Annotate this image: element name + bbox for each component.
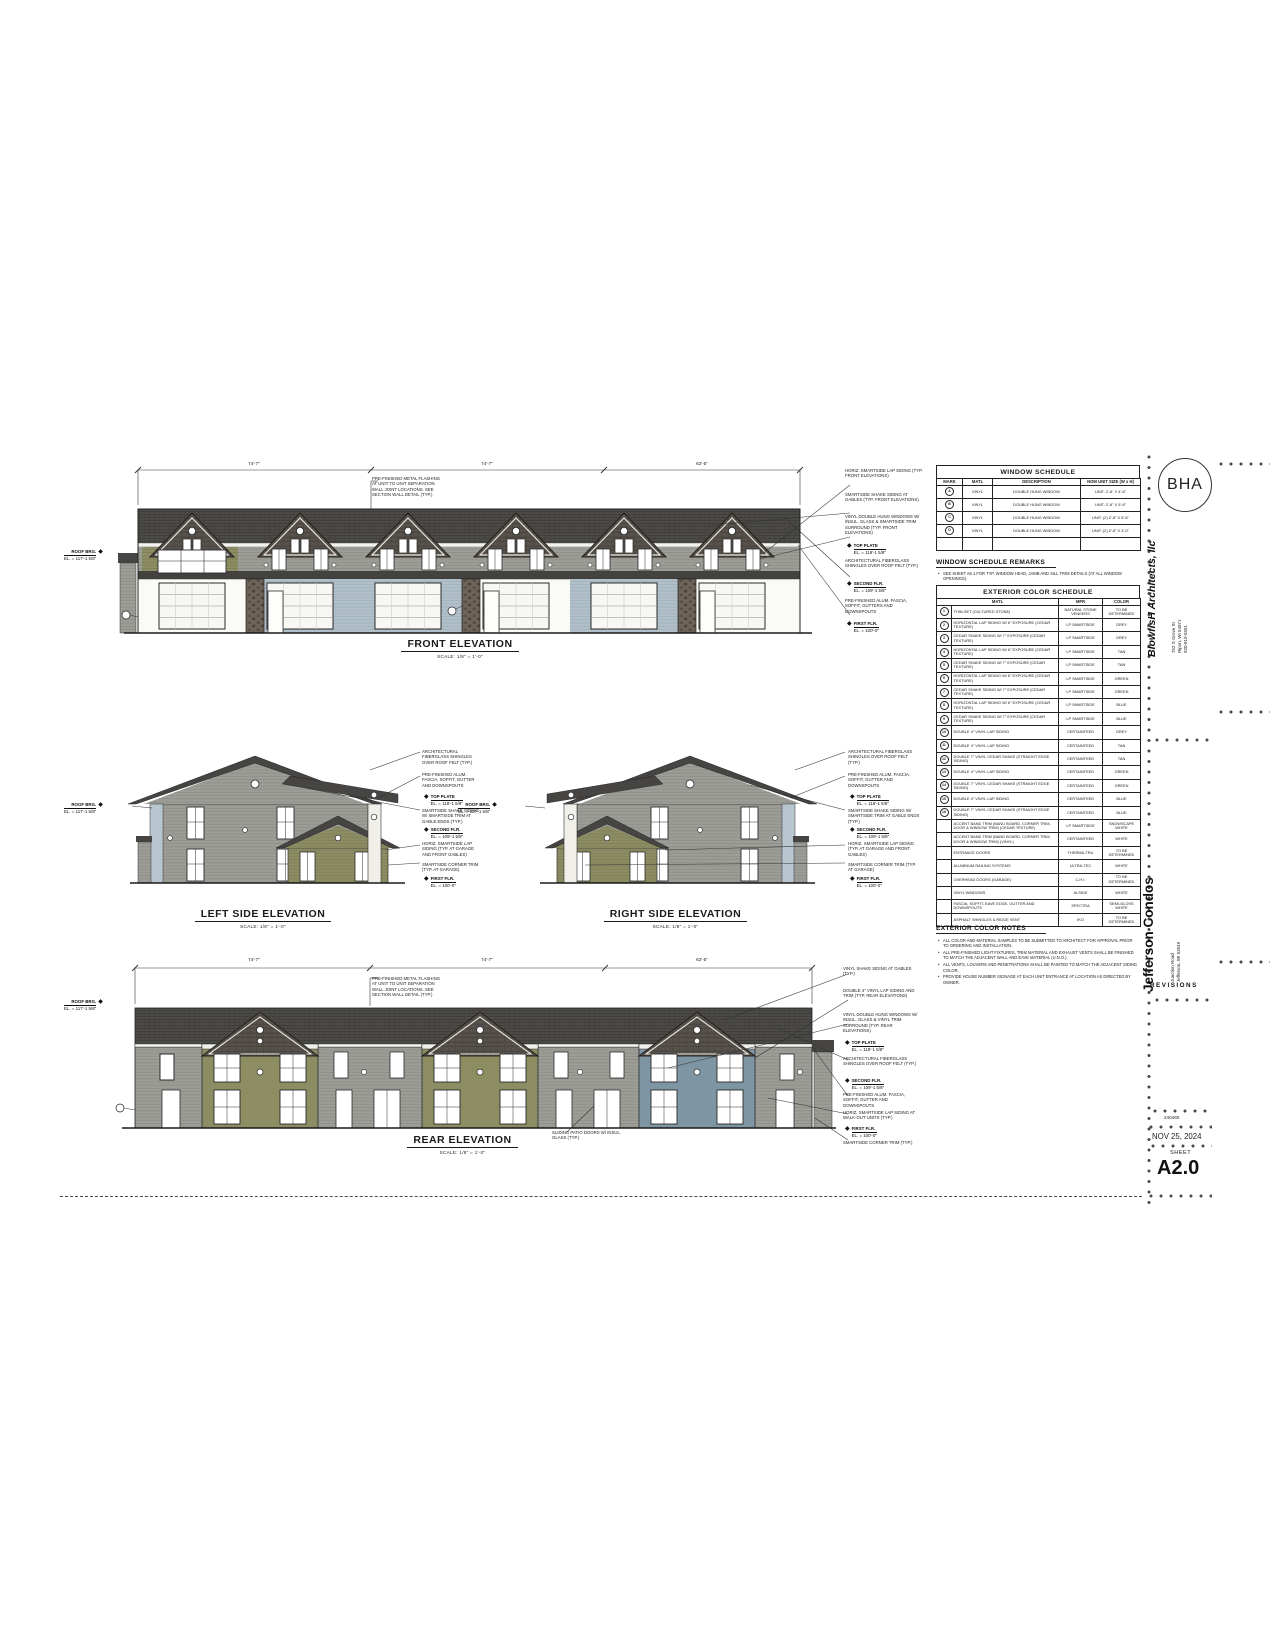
binding-holes-row [1152,737,1212,743]
exterior-color-row: 9 CEDAR SHAKE SIDING W/ 7" EXPOSURE (CED… [937,712,1141,725]
col-header: MATL [937,599,1059,606]
right-level-second-flr: ◆ SECOND FLR.EL. = 109'-1 5/8" [850,827,889,839]
right-level-roof-brg: ROOF BRG.EL. = 117'-1 5/8" ◆ [458,802,497,814]
left-side-elevation-title: LEFT SIDE ELEVATION SCALE: 1/8" = 1'-0" [178,908,348,929]
level-diamond-icon: ◆ [98,802,103,808]
color-mark: 7 [940,688,949,697]
firm-name: BlowfisH Architects, llc [1146,541,1158,657]
exterior-color-notes-title: EXTERIOR COLOR NOTES [936,925,1046,934]
rear-dim-label: 74'-7" [224,957,284,962]
exterior-color-row: 15 DOUBLE 4" VINYL LAP SIDING CERTAINTEE… [937,793,1141,806]
window-schedule-row: D VINYL DOUBLE HUNG WINDOW UNIT: (2) 2'-… [937,524,1141,537]
right-note-shingles: ARCHITECTURAL FIBERGLASS SHINGLES OVER R… [848,749,920,765]
level-diamond-icon: ◆ [424,876,429,882]
col-header: MATL [963,479,993,486]
front-elevation-title: FRONT ELEVATION SCALE: 1/8" = 1'-0" [380,638,540,659]
rear-level-second-flr: ◆ SECOND FLR.EL. = 109'-1 5/8" [845,1078,884,1090]
right-level-first-flr: ◆ FIRST FLR.EL. = 100'-0" [850,876,882,888]
stone-pier [462,579,480,633]
drawing-sheet: { "sheet": { "logo": "BHA", "firm": "Blo… [0,0,1275,1650]
window-mark: B [945,500,954,509]
color-mark: 8 [940,701,949,710]
exterior-color-row: 5 CEDAR SHAKE SIDING W/ 7" EXPOSURE (CED… [937,659,1141,672]
exterior-color-row: 4 HORIZONTAL LAP SIDING W/ 6" EXPOSURE (… [937,645,1141,658]
level-diamond-icon: ◆ [98,549,103,555]
sheet-number: A2.0 [1157,1157,1199,1180]
color-mark: 3 [940,634,949,643]
rear-level-top-plate: ◆ TOP PLATEEL. = 118'-1 5/8" [845,1040,884,1052]
color-mark: 9 [940,715,949,724]
front-building [118,509,812,633]
exterior-color-row: ENTRANCE DOORS THERMA-TRU TO BE DETERMIN… [937,846,1141,859]
exterior-color-row: 10 DOUBLE 4" VINYL LAP SIDING CERTAINTEE… [937,726,1141,739]
exterior-color-row: ACCENT BAND TRIM (BAND BOARD, CORNER TRI… [937,819,1141,832]
rear-note-fascia: PRE-FINISHED ALUM. FASCIA, SOFFIT, GUTTE… [843,1092,919,1108]
front-note-lap-siding: HORIZ. SMARTSIDE LAP SIDING (TYP. FRONT … [845,468,923,479]
front-dimension-line [135,467,803,511]
exterior-color-row: 1 THIN-SET (CULTURED STONE) NATURAL STON… [937,605,1141,618]
binding-holes-row [1146,1193,1212,1199]
color-mark: 5 [940,661,949,670]
level-diamond-icon: ◆ [492,802,497,808]
exterior-color-notes: ALL COLOR AND MATERIAL SAMPLES TO BE SUB… [938,938,1138,987]
level-diamond-icon: ◆ [98,999,103,1005]
exterior-color-row: VINYL WINDOWS ALSIDE WHITE [937,886,1141,899]
front-level-second-flr: ◆ SECOND FLR.EL. = 109'-1 5/8" [847,581,886,593]
level-diamond-icon: ◆ [845,1078,850,1084]
level-diamond-icon: ◆ [424,794,429,800]
color-mark: 16 [940,808,949,817]
project-address-line: Junction Road [1170,953,1175,982]
window-schedule-table: MARK MATL DESCRIPTION NOM UNIT SIZE (W x… [936,478,1141,551]
sheet-fold-line [60,1196,1142,1197]
firm-address-line: 752 S Grove St [1171,622,1176,653]
rear-flashing-note: PRE-FINISHED METAL FLASHING AT UNIT TO U… [372,976,442,997]
binding-holes-row [1216,461,1270,467]
window-mark: A [945,487,954,496]
left-level-second-flr: ◆ SECOND FLR.EL. = 109'-1 5/8" [424,827,463,839]
right-note-lap: HORIZ. SMARTSIDE LAP SIDING (TYP. AT GAR… [848,841,920,857]
level-diamond-icon: ◆ [850,876,855,882]
front-note-fascia: PRE-FINISHED ALUM. FASCIA, SOFFIT, GUTTE… [845,598,923,614]
front-note-shingles: ARCHITECTURAL FIBERGLASS SHINGLES OVER R… [845,558,923,569]
rear-note-patio-doors: SLIDING PATIO DOORS W/ INSUL. GLASS (TYP… [552,1130,632,1141]
color-mark: 1 [940,607,949,616]
front-dim-label: 74'-7" [457,461,517,466]
front-note-shake-siding: SMARTSIDE SHAKE SIDING AT GABLES (TYP. F… [845,492,923,503]
sheet-date: NOV 25, 2024 [1152,1132,1201,1141]
exterior-color-row: ACCENT BAND TRIM (BAND BOARD, CORNER TRI… [937,833,1141,846]
exterior-color-schedule: EXTERIOR COLOR SCHEDULE MATL MFR COLOR 1… [936,585,1140,927]
col-header: COLOR [1103,599,1141,606]
left-side-elevation-drawing [130,700,422,895]
firm-logo: BHA [1158,458,1212,512]
rear-note-lap-smartside: HORIZ. SMARTSIDE LAP SIDING AT WALK-OUT … [843,1110,919,1121]
window-schedule-row: C VINYL DOUBLE HUNG WINDOW UNIT: (2) 2'-… [937,511,1141,524]
exterior-color-row: 2 HORIZONTAL LAP SIDING W/ 6" EXPOSURE (… [937,619,1141,632]
rear-building [116,1008,836,1128]
exterior-color-row: 8 HORIZONTAL LAP SIDING W/ 6" EXPOSURE (… [937,699,1141,712]
binding-holes-row [1216,959,1270,965]
project-address-line: Jefferson, WI 53549 [1176,942,1181,982]
project-name: Jefferson Condos [1141,877,1156,992]
level-diamond-icon: ◆ [850,794,855,800]
exterior-color-schedule-title: EXTERIOR COLOR SCHEDULE [936,585,1140,599]
exterior-color-row: 7 CEDAR SHAKE SIDING W/ 7" EXPOSURE (CED… [937,686,1141,699]
color-mark: 11 [940,741,949,750]
level-diamond-icon: ◆ [847,543,852,549]
rear-dim-label: 62'-5" [672,957,732,962]
color-mark: 13 [940,768,949,777]
exterior-color-row: OVERHEAD DOORS (GARAGE) C.H.I. TO BE DET… [937,873,1141,886]
window-remarks: SEE SHEET A6.1 FOR TYP. WINDOW HEAD, JAM… [938,571,1138,583]
level-diamond-icon: ◆ [847,621,852,627]
sheet-label: SHEET [1170,1150,1191,1156]
level-diamond-icon: ◆ [850,827,855,833]
rear-dimension-line [132,965,815,1006]
stone-pier [246,579,264,633]
left-note-corner-trim: SMARTSIDE CORNER TRIM (TYP. AT GARAGE) [422,862,484,873]
col-header: NOM UNIT SIZE (W x H) [1081,479,1141,486]
exterior-color-row: 3 CEDAR SHAKE SIDING W/ 7" EXPOSURE (CED… [937,632,1141,645]
exterior-color-row: ALUMINUM RAILING SYSTEMS ULTRA-TEC WHITE [937,860,1141,873]
rear-note-lap-vinyl: DOUBLE 4" VINYL LAP SIDING AND TRIM (TYP… [843,988,919,999]
col-header: MFR [1059,599,1103,606]
front-flashing-note: PRE-FINISHED METAL FLASHING AT UNIT TO U… [372,476,442,497]
window-mark: D [945,526,954,535]
level-diamond-icon: ◆ [845,1040,850,1046]
rear-dim-label: 74'-7" [457,957,517,962]
firm-address-line: Ripon, WI 54971 [1177,619,1182,653]
front-level-roof-brg: ROOF BRG.EL. = 117'-1 5/8" ◆ [64,549,103,561]
rear-elevation-title: REAR ELEVATION SCALE: 1/8" = 1'-0" [385,1134,540,1155]
rear-level-first-flr: ◆ FIRST FLR.EL. = 100'-0" [845,1126,877,1138]
right-note-shake: SMARTSIDE SHAKE SIDING W/ SMARTSIDE TRIM… [848,808,920,824]
left-level-roof-brg: ROOF BRG.EL. = 117'-1 5/8" ◆ [64,802,103,814]
rear-elevation-drawing [112,948,852,1148]
front-dim-label: 62'-5" [672,461,732,466]
rear-note-shingles: ARCHITECTURAL FIBERGLASS SHINGLES OVER R… [843,1056,919,1067]
window-schedule-row: B VINYL DOUBLE HUNG WINDOW UNIT: 2'-8" x… [937,498,1141,511]
rear-note-windows: VINYL DOUBLE HUNG WINDOWS W/ INSUL. GLAS… [843,1012,919,1033]
front-note-windows: VINYL DOUBLE HUNG WINDOWS W/ INSUL. GLAS… [845,514,923,535]
exterior-color-schedule-table: MATL MFR COLOR 1 THIN-SET (CULTURED STON… [936,598,1141,927]
color-mark: 14 [940,781,949,790]
exterior-color-row: 6 HORIZONTAL LAP SIDING W/ 6" EXPOSURE (… [937,672,1141,685]
level-diamond-icon: ◆ [424,827,429,833]
col-header: DESCRIPTION [993,479,1081,486]
left-note-lap: HORIZ. SMARTSIDE LAP SIDING (TYP. AT GAR… [422,841,484,857]
level-diamond-icon: ◆ [847,581,852,587]
window-schedule-row [937,537,1141,550]
right-level-top-plate: ◆ TOP PLATEEL. = 118'-1 5/8" [850,794,889,806]
revisions-label: REVISIONS [1150,982,1198,989]
right-note-fascia: PRE-FINISHED ALUM. FASCIA, SOFFIT, GUTTE… [848,772,920,788]
stone-pier [678,579,696,633]
project-number: 240460 [1164,1115,1179,1120]
color-mark: 10 [940,728,949,737]
color-mark: 6 [940,674,949,683]
firm-logo-text: BHA [1167,476,1203,494]
binding-holes-row [1148,1143,1212,1149]
color-mark: 12 [940,755,949,764]
color-mark: 2 [940,621,949,630]
rear-note-shake: VINYL SHAKE SIDING AT GABLES (TYP.) [843,966,919,977]
window-mark: C [945,513,954,522]
exterior-color-row: 16 DOUBLE 7" VINYL CEDAR SHAKE (STRAIGHT… [937,806,1141,819]
front-dim-label: 74'-7" [224,461,284,466]
left-note-shingles: ARCHITECTURAL FIBERGLASS SHINGLES OVER R… [422,749,484,765]
level-diamond-icon: ◆ [845,1126,850,1132]
exterior-color-row: 12 DOUBLE 7" VINYL CEDAR SHAKE (STRAIGHT… [937,753,1141,766]
binding-holes-row [1146,1124,1212,1130]
binding-holes-row [1152,997,1212,1003]
binding-holes-row [1150,1108,1212,1114]
exterior-color-row: FASCIA, SOFFIT, EAVE EDGE, GUTTER AND DO… [937,900,1141,913]
color-mark: 15 [940,795,949,804]
window-schedule-row: A VINYL DOUBLE HUNG WINDOW UNIT: 2'-8" x… [937,485,1141,498]
firm-address-line: 920-810-5561 [1183,625,1188,653]
col-header: MARK [937,479,963,486]
exterior-color-row: 11 DOUBLE 4" VINYL LAP SIDING CERTAINTEE… [937,739,1141,752]
exterior-color-row: 13 DOUBLE 4" VINYL LAP SIDING CERTAINTEE… [937,766,1141,779]
front-roof [138,509,800,545]
window-schedule-title: WINDOW SCHEDULE [936,465,1140,479]
left-level-first-flr: ◆ FIRST FLR.EL. = 100'-0" [424,876,456,888]
right-side-elevation-title: RIGHT SIDE ELEVATION SCALE: 1/8" = 1'-0" [588,908,763,929]
front-elevation-drawing [112,425,852,640]
front-level-first-flr: ◆ FIRST FLR.EL. = 100'-0" [847,621,879,633]
left-note-fascia: PRE-FINISHED ALUM. FASCIA, SOFFIT, GUTTE… [422,772,484,788]
window-schedule: WINDOW SCHEDULE MARK MATL DESCRIPTION NO… [936,465,1140,551]
exterior-color-row: 14 DOUBLE 7" VINYL CEDAR SHAKE (STRAIGHT… [937,779,1141,792]
rear-note-corner-trim: SMARTSIDE CORNER TRIM (TYP.) [843,1140,919,1145]
window-remarks-title: WINDOW SCHEDULE REMARKS [936,559,1056,568]
binding-holes-row [1216,709,1270,715]
right-side-elevation-drawing [495,700,850,895]
front-level-top-plate: ◆ TOP PLATEEL. = 118'-1 5/8" [847,543,886,555]
right-note-corner-trim: SMARTSIDE CORNER TRIM (TYP. AT GARAGE) [848,862,920,873]
color-mark: 4 [940,648,949,657]
rear-level-roof-brg: ROOF BRG.EL. = 117'-1 5/8" ◆ [64,999,103,1011]
